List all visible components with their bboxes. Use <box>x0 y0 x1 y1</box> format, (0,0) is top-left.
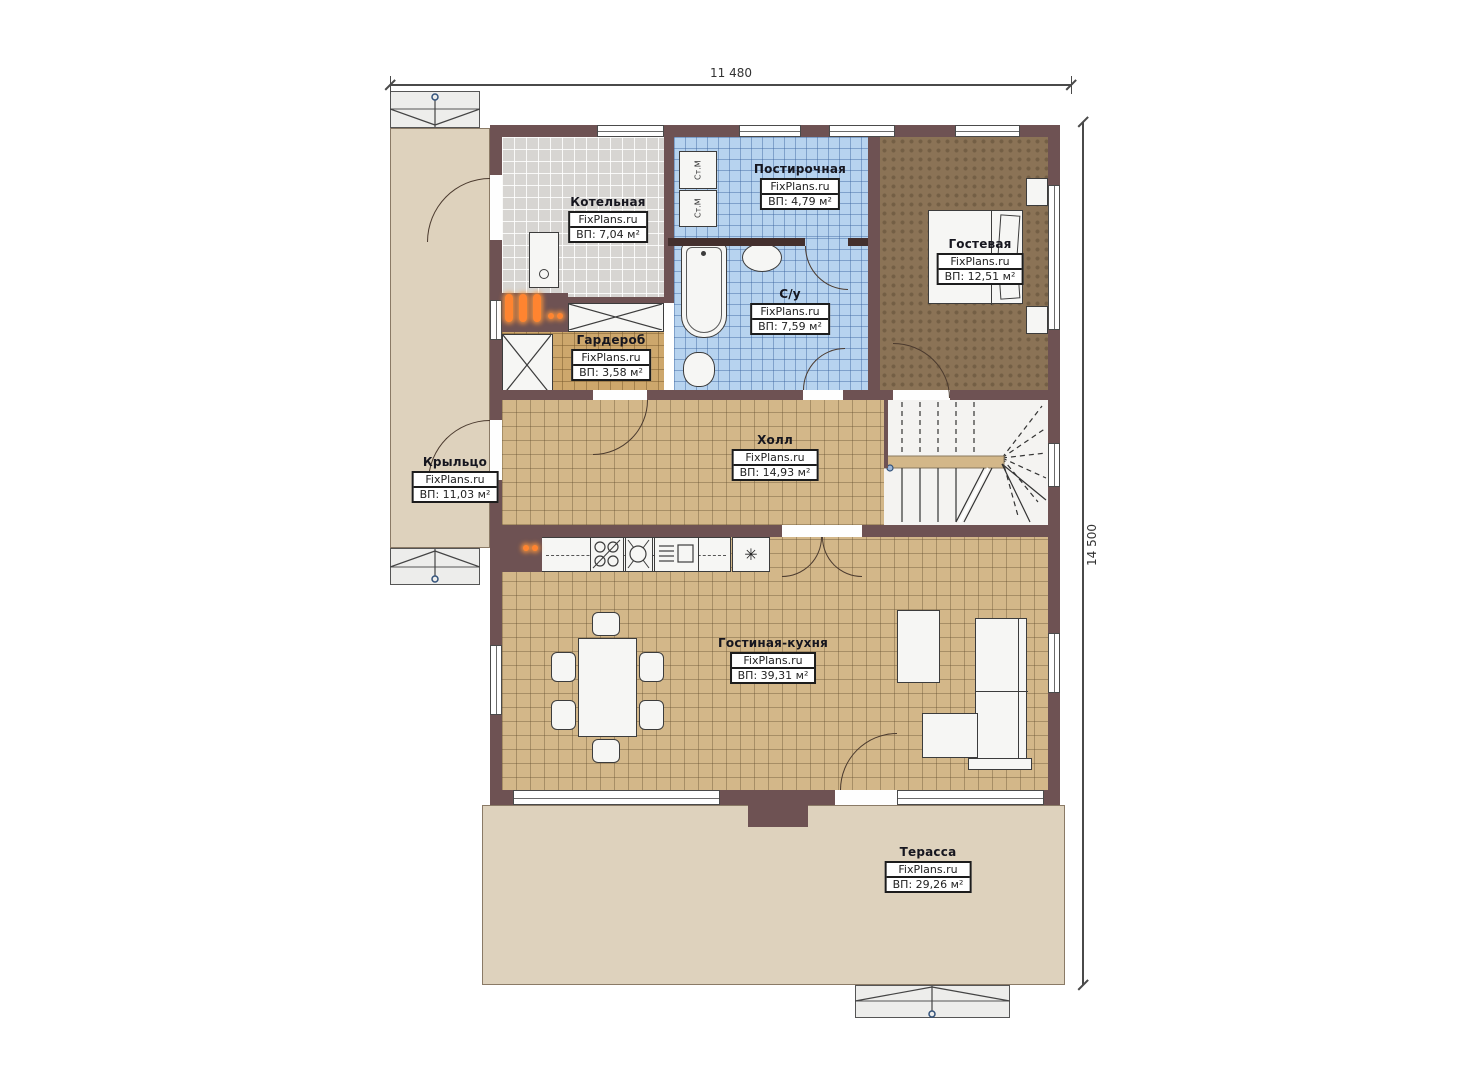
radiator-icon <box>557 313 563 319</box>
room-name: Постирочная <box>754 162 846 176</box>
wall-left-segment <box>490 340 502 420</box>
room-name: С/у <box>750 287 830 301</box>
watermark: FixPlans.ru <box>762 180 838 195</box>
wall-right-segment <box>1048 693 1060 805</box>
stove <box>590 537 624 572</box>
wall-laundry-bathroom <box>668 238 805 246</box>
room-area: ВП: 29,26 м² <box>887 878 970 891</box>
room-label-hall: Холл FixPlans.ru ВП: 14,93 м² <box>732 433 819 481</box>
window <box>1048 185 1060 330</box>
cabinet <box>568 303 664 332</box>
terrace-area <box>482 805 1065 985</box>
chair <box>592 739 620 763</box>
watermark: FixPlans.ru <box>732 654 815 669</box>
watermark: FixPlans.ru <box>570 213 646 228</box>
chair <box>592 612 620 636</box>
sofa-section-vertical <box>975 618 1027 763</box>
room-area: ВП: 4,79 м² <box>762 195 838 208</box>
window <box>829 125 895 137</box>
room-label-guest: Гостевая FixPlans.ru ВП: 12,51 м² <box>937 237 1024 285</box>
room-tag: FixPlans.ru ВП: 12,51 м² <box>937 253 1024 285</box>
watermark: FixPlans.ru <box>414 473 497 488</box>
room-area: ВП: 39,31 м² <box>732 669 815 682</box>
tv-stand <box>897 610 940 683</box>
sofa-armrest <box>968 758 1032 770</box>
wall-laundry-bathroom <box>848 238 868 246</box>
watermark: FixPlans.ru <box>734 451 817 466</box>
room-name: Гостиная-кухня <box>718 636 828 650</box>
oven <box>654 537 699 572</box>
wall-hall-top-segment <box>950 390 1048 400</box>
cabinet <box>502 334 553 397</box>
watermark: FixPlans.ru <box>939 255 1022 270</box>
wall-left-segment <box>490 480 502 645</box>
wall-boiler-laundry <box>664 137 674 303</box>
room-name: Терасса <box>885 845 972 859</box>
dimension-height-line <box>1082 122 1084 985</box>
bathtub <box>681 242 727 338</box>
door-threshold <box>803 390 843 400</box>
exterior-steps-icon <box>390 91 480 128</box>
room-label-porch: Крыльцо FixPlans.ru ВП: 11,03 м² <box>412 455 499 503</box>
staircase <box>884 398 1048 525</box>
room-name: Гардероб <box>571 333 651 347</box>
room-tag: FixPlans.ru ВП: 11,03 м² <box>412 471 499 503</box>
washing-machine: Ст.М <box>679 151 717 189</box>
room-label-terrace: Терасса FixPlans.ru ВП: 29,26 м² <box>885 845 972 893</box>
chair <box>551 652 576 682</box>
room-name: Крыльцо <box>412 455 499 469</box>
window <box>490 300 502 340</box>
window <box>1048 443 1060 487</box>
wall-hall-top-segment <box>502 390 593 400</box>
door-threshold <box>593 390 647 400</box>
exterior-steps-icon <box>855 985 1010 1018</box>
wall-right-segment <box>1048 487 1060 633</box>
fridge: ✳ <box>732 537 770 572</box>
window <box>490 645 502 715</box>
room-name: Холл <box>732 433 819 447</box>
wall-bottom-segment <box>720 790 835 805</box>
wall-left-segment <box>490 240 502 300</box>
radiator-icon <box>505 294 513 322</box>
wall-kitchen-corner <box>502 537 542 572</box>
room-tag: FixPlans.ru ВП: 14,93 м² <box>732 449 819 481</box>
room-tag: FixPlans.ru ВП: 4,79 м² <box>760 178 840 210</box>
room-area: ВП: 14,93 м² <box>734 466 817 479</box>
wall-kitchen-segment <box>502 525 782 537</box>
room-tag: FixPlans.ru ВП: 3,58 м² <box>571 349 651 381</box>
wall-bottom-segment <box>1044 790 1060 805</box>
bathtub-drain <box>701 251 706 256</box>
room-area: ВП: 12,51 м² <box>939 270 1022 283</box>
radiator-icon <box>548 313 554 319</box>
wall-bottom-segment <box>490 790 513 805</box>
boiler-unit <box>529 232 559 288</box>
floor-plan: 11 480 14 500 <box>0 0 1473 1080</box>
radiator-icon <box>532 545 538 551</box>
boiler-dial <box>539 269 549 279</box>
chair <box>639 652 664 682</box>
radiator-icon <box>533 294 541 322</box>
chimney-bump <box>748 805 808 827</box>
nightstand <box>1026 178 1048 206</box>
washing-machine-label: Ст.М <box>680 152 716 188</box>
wall-kitchen-segment <box>862 525 1048 537</box>
room-tag: FixPlans.ru ВП: 7,04 м² <box>568 211 648 243</box>
room-label-boiler: Котельная FixPlans.ru ВП: 7,04 м² <box>568 195 648 243</box>
radiator-icon <box>523 545 529 551</box>
room-area: ВП: 7,04 м² <box>570 228 646 241</box>
dimension-height-value: 14 500 <box>1085 515 1099 575</box>
window <box>897 790 1044 805</box>
wall-boiler-wardrobe <box>568 297 664 303</box>
fridge-symbol-icon: ✳ <box>733 538 769 571</box>
washing-machine-label: Ст.М <box>680 191 716 226</box>
window <box>513 790 720 805</box>
room-label-wardrobe: Гардероб FixPlans.ru ВП: 3,58 м² <box>571 333 651 381</box>
radiator-icon <box>519 294 527 322</box>
sofa-section-horizontal <box>922 713 978 758</box>
window <box>739 125 801 137</box>
sofa-back-line <box>1018 619 1019 764</box>
washing-machine: Ст.М <box>679 190 717 227</box>
door-threshold <box>782 525 862 537</box>
dimension-width-value: 11 480 <box>390 66 1072 80</box>
door-threshold <box>490 175 502 240</box>
watermark: FixPlans.ru <box>573 351 649 366</box>
wall-hall-top-segment <box>647 390 803 400</box>
chair <box>639 700 664 730</box>
toilet <box>683 352 715 387</box>
watermark: FixPlans.ru <box>887 863 970 878</box>
window <box>597 125 664 137</box>
stair-rail <box>884 398 888 468</box>
wall-bathroom-guest <box>868 137 880 398</box>
room-area: ВП: 11,03 м² <box>414 488 497 501</box>
door-threshold <box>835 790 897 805</box>
sofa-seat-line <box>976 691 1028 692</box>
wall-right-segment <box>1048 137 1060 185</box>
wall-right-segment <box>1048 330 1060 443</box>
room-label-living-kitchen: Гостиная-кухня FixPlans.ru ВП: 39,31 м² <box>718 636 828 684</box>
chair <box>551 700 576 730</box>
window <box>1048 633 1060 693</box>
dimension-width-line <box>390 84 1072 86</box>
room-tag: FixPlans.ru ВП: 29,26 м² <box>885 861 972 893</box>
exterior-steps-icon <box>390 548 480 585</box>
nightstand <box>1026 306 1048 334</box>
kitchen-sink <box>625 537 653 572</box>
room-label-bathroom: С/у FixPlans.ru ВП: 7,59 м² <box>750 287 830 335</box>
dining-table <box>578 638 637 737</box>
room-tag: FixPlans.ru ВП: 7,59 м² <box>750 303 830 335</box>
watermark: FixPlans.ru <box>752 305 828 320</box>
bathtub-inner <box>686 247 722 333</box>
room-area: ВП: 7,59 м² <box>752 320 828 333</box>
room-tag: FixPlans.ru ВП: 39,31 м² <box>730 652 817 684</box>
sink <box>742 243 782 272</box>
wall-left-segment <box>490 137 502 175</box>
room-name: Котельная <box>568 195 648 209</box>
room-area: ВП: 3,58 м² <box>573 366 649 379</box>
room-name: Гостевая <box>937 237 1024 251</box>
window <box>955 125 1020 137</box>
room-label-laundry: Постирочная FixPlans.ru ВП: 4,79 м² <box>754 162 846 210</box>
